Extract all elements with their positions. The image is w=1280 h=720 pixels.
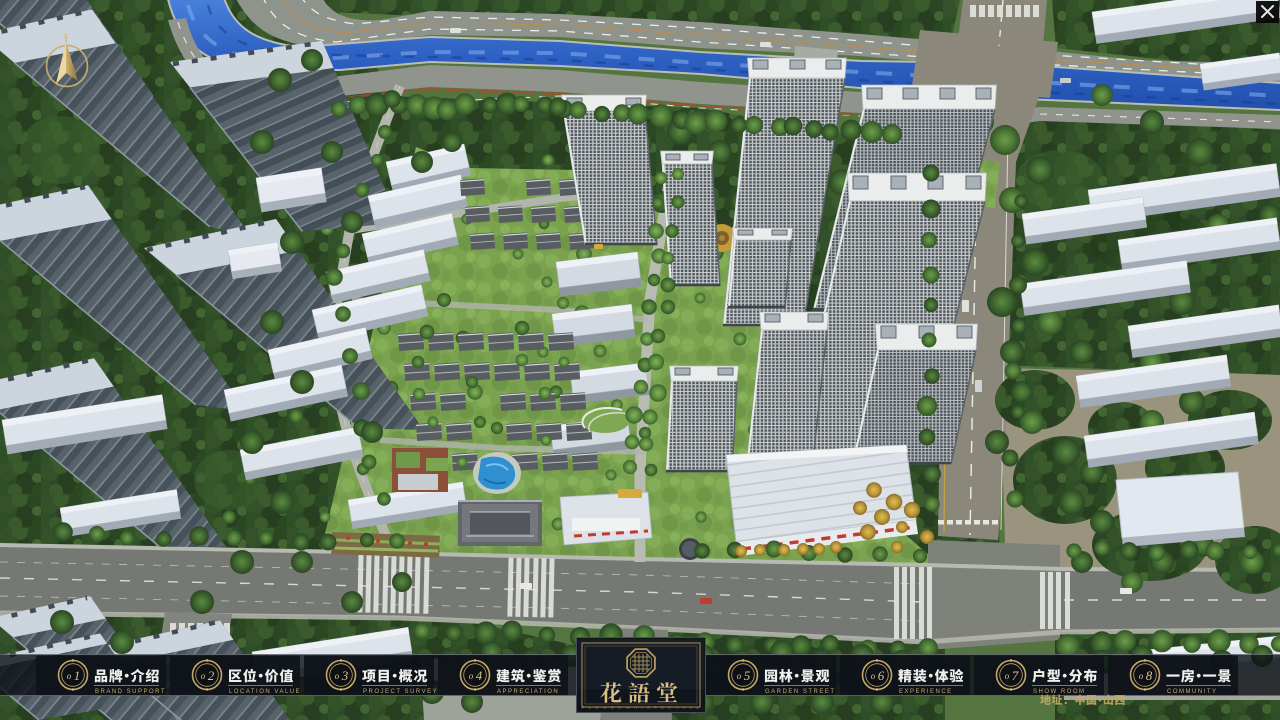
svg-text:o: o [737, 671, 742, 681]
svg-text:o: o [1005, 671, 1010, 681]
svg-text:o: o [1139, 671, 1144, 681]
svg-text:o: o [201, 671, 206, 681]
svg-text:4: 4 [476, 668, 483, 683]
svg-text:GARDEN STREET: GARDEN STREET [765, 689, 836, 695]
svg-text:F L O W E R W H I S P E R H: F L O W E R W H I S P E R H A L L [582, 705, 701, 710]
svg-text:PROJECT SURVEY: PROJECT SURVEY [363, 689, 438, 695]
svg-text:2: 2 [208, 668, 215, 683]
svg-text:5: 5 [744, 668, 751, 683]
svg-text:SHOW ROOM: SHOW ROOM [1033, 689, 1086, 695]
svg-text:EXPERIENCE: EXPERIENCE [899, 689, 953, 695]
svg-text:N: N [63, 32, 69, 41]
svg-text:o: o [469, 671, 474, 681]
svg-text:3: 3 [341, 668, 349, 683]
svg-text:1: 1 [74, 668, 81, 683]
svg-text:LOCATION VALUE: LOCATION VALUE [229, 689, 301, 695]
svg-text:o: o [67, 671, 72, 681]
svg-text:8: 8 [1146, 668, 1153, 683]
svg-text:o: o [871, 671, 876, 681]
svg-text:6: 6 [878, 668, 885, 683]
svg-text:COMMUNITY: COMMUNITY [1167, 689, 1218, 695]
svg-text:7: 7 [1012, 668, 1019, 683]
svg-text:APPRECIATION: APPRECIATION [497, 689, 559, 695]
svg-text:BRAND SUPPORT: BRAND SUPPORT [95, 689, 166, 695]
svg-text:o: o [335, 671, 340, 681]
